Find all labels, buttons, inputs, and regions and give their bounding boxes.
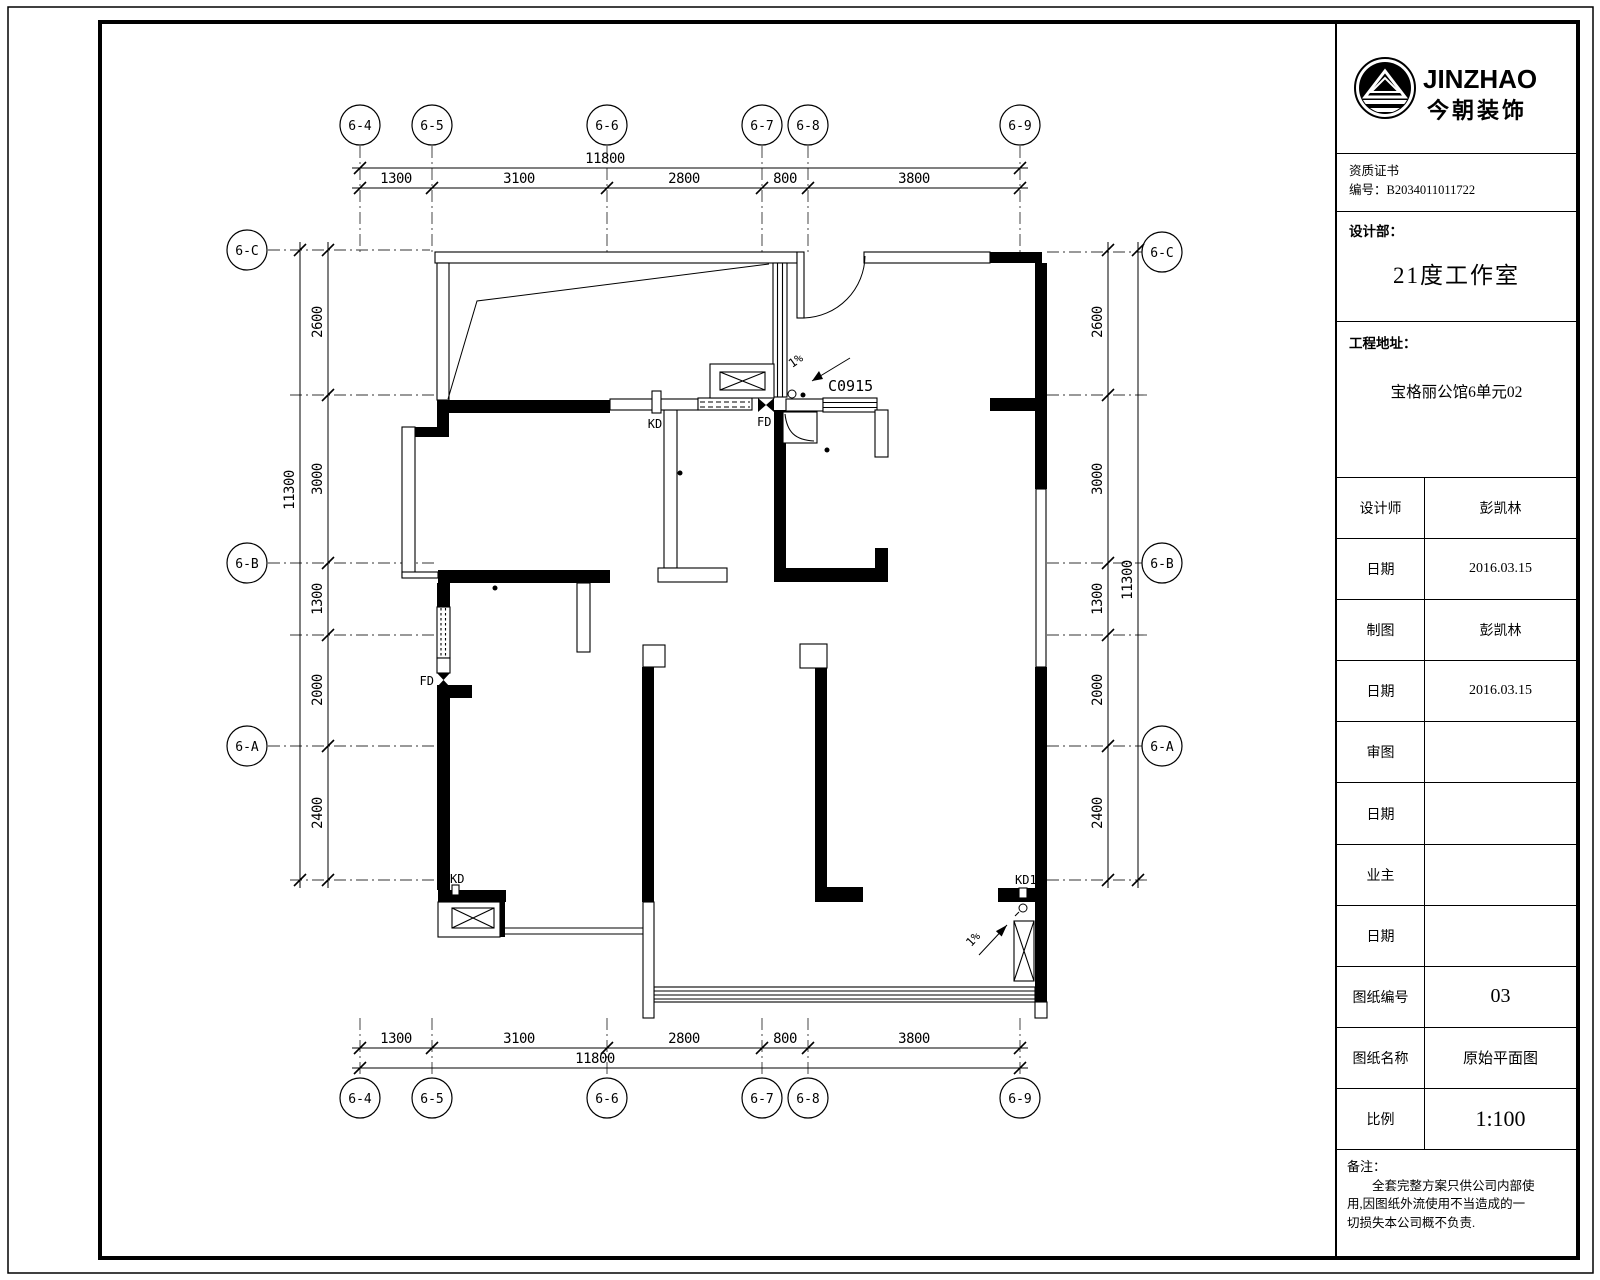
- row-value: [1425, 783, 1576, 843]
- bubble-6-8-top: 6-8: [796, 119, 819, 134]
- note-label: 备注：: [1347, 1157, 1566, 1177]
- entry-top-wall: [864, 252, 990, 263]
- dim-left-5: 2400: [310, 797, 326, 829]
- left-hatch-window: [437, 607, 450, 658]
- dim-right-3: 1300: [1090, 583, 1106, 615]
- table-row-date2: 日期 2016.03.15: [1337, 661, 1576, 722]
- dim-bottom-2: 3100: [503, 1031, 535, 1047]
- label-window-code: C0915: [828, 377, 873, 395]
- window-c0915: [823, 398, 877, 412]
- label-kd-top: KD: [648, 417, 662, 431]
- row-label: 日期: [1337, 661, 1425, 721]
- row-value: 2016.03.15: [1425, 539, 1576, 599]
- row-label: 日期: [1337, 539, 1425, 599]
- cert-line2: 编号：B2034011011722: [1349, 181, 1564, 200]
- plan-details: [437, 252, 1027, 955]
- label-fd-top: FD: [757, 415, 771, 429]
- bubble-6-5-top: 6-5: [420, 119, 443, 134]
- floor-drain: [1019, 904, 1027, 912]
- row-label: 设计师: [1337, 478, 1425, 538]
- row-label: 日期: [1337, 906, 1425, 966]
- row-value: [1425, 722, 1576, 782]
- dim-left-3: 1300: [310, 583, 326, 615]
- dim-left-total: 11300: [282, 470, 298, 510]
- entry-window: [773, 263, 787, 397]
- bubble-6-B-right: 6-B: [1150, 557, 1174, 572]
- fd-valve-top: [758, 398, 766, 412]
- table-row-sheet-name: 图纸名称 原始平面图: [1337, 1028, 1576, 1089]
- jinzhao-logo-icon: JINZHAO 今朝装饰: [1347, 41, 1567, 136]
- table-row-reviewer: 审图: [1337, 722, 1576, 783]
- bay-window-wall: [402, 427, 415, 577]
- dim-bottom-1: 1300: [380, 1031, 412, 1047]
- table-row-designer: 设计师 彭凯林: [1337, 478, 1576, 539]
- dimension-texts: 11800 1300 3100 2800 800 3800 11800 1300…: [282, 151, 1136, 1067]
- dim-top-2: 3100: [503, 171, 535, 187]
- title-block: JINZHAO 今朝装饰 资质证书 编号：B2034011011722 设计部：…: [1335, 22, 1578, 1258]
- right-window: [1036, 489, 1046, 667]
- balcony-left-pier: [643, 902, 654, 1018]
- entry-door-arc: [804, 256, 865, 318]
- row-value: 彭凯林: [1425, 600, 1576, 660]
- brand-en: JINZHAO: [1423, 64, 1537, 94]
- label-kd-left: KD: [450, 872, 464, 886]
- company-logo: JINZHAO 今朝装饰: [1337, 24, 1576, 154]
- bubble-6-B-left: 6-B: [235, 557, 259, 572]
- row-label: 图纸名称: [1337, 1028, 1425, 1088]
- note-section: 备注： 全套完整方案只供公司内部使 用,因图纸外流使用不当造成的一 切损失本公司…: [1337, 1150, 1576, 1256]
- dim-bottom-4: 800: [773, 1031, 797, 1047]
- table-row-date4: 日期: [1337, 906, 1576, 967]
- dim-right-1: 2600: [1090, 306, 1106, 338]
- dim-left-2: 3000: [310, 463, 326, 495]
- bubble-6-A-right: 6-A: [1150, 740, 1174, 755]
- row-value: 彭凯林: [1425, 478, 1576, 538]
- row-label: 比例: [1337, 1089, 1425, 1149]
- address-label: 工程地址：: [1349, 332, 1564, 352]
- bubble-6-9-bottom: 6-9: [1008, 1092, 1031, 1107]
- cert-line1: 资质证书: [1349, 162, 1564, 181]
- dim-top-3: 2800: [668, 171, 700, 187]
- dim-top-5: 3800: [898, 171, 930, 187]
- row-value: 原始平面图: [1425, 1028, 1576, 1088]
- note-line: 切损失本公司概不负责.: [1347, 1214, 1566, 1233]
- dept-value: 21度工作室: [1349, 256, 1564, 290]
- fd-valve-left: [437, 673, 450, 680]
- bubble-6-C-right: 6-C: [1150, 246, 1173, 261]
- bubble-6-7-top: 6-7: [750, 119, 773, 134]
- plan-labels: KD FD C0915 FD KD KD1 1% 1%: [420, 350, 1037, 949]
- row-label: 图纸编号: [1337, 967, 1425, 1027]
- dim-top-total: 11800: [585, 151, 625, 167]
- table-row-date1: 日期 2016.03.15: [1337, 539, 1576, 600]
- label-slope-bottom: 1%: [963, 929, 984, 950]
- bubble-6-5-bottom: 6-5: [420, 1092, 443, 1107]
- dim-bottom-3: 2800: [668, 1031, 700, 1047]
- door-frame-cap2: [800, 644, 827, 668]
- brand-cn: 今朝装饰: [1427, 98, 1527, 123]
- row-value: 1:100: [1425, 1089, 1576, 1149]
- label-slope-top: 1%: [786, 350, 807, 370]
- bubble-6-6-top: 6-6: [595, 119, 618, 134]
- dim-bottom-total: 11800: [575, 1051, 615, 1067]
- row-value: [1425, 906, 1576, 966]
- bubble-6-8-bottom: 6-8: [796, 1092, 819, 1107]
- table-row-date3: 日期: [1337, 783, 1576, 844]
- dim-top-1: 1300: [380, 171, 412, 187]
- dim-bottom-5: 3800: [898, 1031, 930, 1047]
- kd-window: [698, 398, 752, 410]
- bubble-6-C-left: 6-C: [235, 244, 258, 259]
- address-section: 工程地址： 宝格丽公馆6单元02: [1337, 322, 1576, 478]
- entry-door-leaf: [797, 252, 804, 318]
- row-value: 2016.03.15: [1425, 661, 1576, 721]
- table-row-sheet-number: 图纸编号 03: [1337, 967, 1576, 1028]
- dim-right-5: 2400: [1090, 797, 1106, 829]
- note-line: 全套完整方案只供公司内部使: [1347, 1177, 1566, 1196]
- row-value: [1425, 845, 1576, 905]
- terrace-left-wall: [437, 263, 449, 400]
- row-label: 制图: [1337, 600, 1425, 660]
- door-frame-cap: [643, 645, 665, 667]
- balcony-right-pier: [1035, 1002, 1047, 1018]
- kd-marker-left: [452, 885, 459, 895]
- note-line: 用,因图纸外流使用不当造成的一: [1347, 1195, 1566, 1214]
- dim-left-1: 2600: [310, 306, 326, 338]
- cert-section: 资质证书 编号：B2034011011722: [1337, 154, 1576, 212]
- bubble-6-7-bottom: 6-7: [750, 1092, 773, 1107]
- bubble-6-4-bottom: 6-4: [348, 1092, 372, 1107]
- dept-section: 设计部： 21度工作室: [1337, 212, 1576, 322]
- walls-thin: [402, 252, 1047, 1018]
- row-label: 日期: [1337, 783, 1425, 843]
- label-kd1: KD1: [1015, 873, 1037, 887]
- dim-right-2: 3000: [1090, 463, 1106, 495]
- row-label: 业主: [1337, 845, 1425, 905]
- bubble-6-9-top: 6-9: [1008, 119, 1031, 134]
- bubble-6-6-bottom: 6-6: [595, 1092, 618, 1107]
- dim-left-4: 2000: [310, 674, 326, 706]
- drawing-sheet: 11800 1300 3100 2800 800 3800 11800 1300…: [0, 0, 1600, 1280]
- table-row-owner: 业主: [1337, 845, 1576, 906]
- row-value: 03: [1425, 967, 1576, 1027]
- bubble-6-4-top: 6-4: [348, 119, 372, 134]
- dim-top-4: 800: [773, 171, 797, 187]
- bubble-6-A-left: 6-A: [235, 740, 259, 755]
- kd1-marker: [1019, 888, 1027, 898]
- row-label: 审图: [1337, 722, 1425, 782]
- table-row-drafter: 制图 彭凯林: [1337, 600, 1576, 661]
- label-fd-left: FD: [420, 674, 434, 688]
- dim-right-4: 2000: [1090, 674, 1106, 706]
- dim-right-total: 11300: [1120, 560, 1136, 600]
- dimension-lines: [300, 168, 1138, 1068]
- table-row-scale: 比例 1:100: [1337, 1089, 1576, 1150]
- terrace-top-wall: [435, 252, 797, 263]
- info-table: 设计师 彭凯林 日期 2016.03.15 制图 彭凯林 日期 2016.03.…: [1337, 478, 1576, 1150]
- dept-label: 设计部：: [1349, 220, 1564, 240]
- address-value: 宝格丽公馆6单元02: [1349, 380, 1564, 402]
- corridor-wall: [664, 410, 677, 568]
- kd-marker-top: [652, 391, 661, 413]
